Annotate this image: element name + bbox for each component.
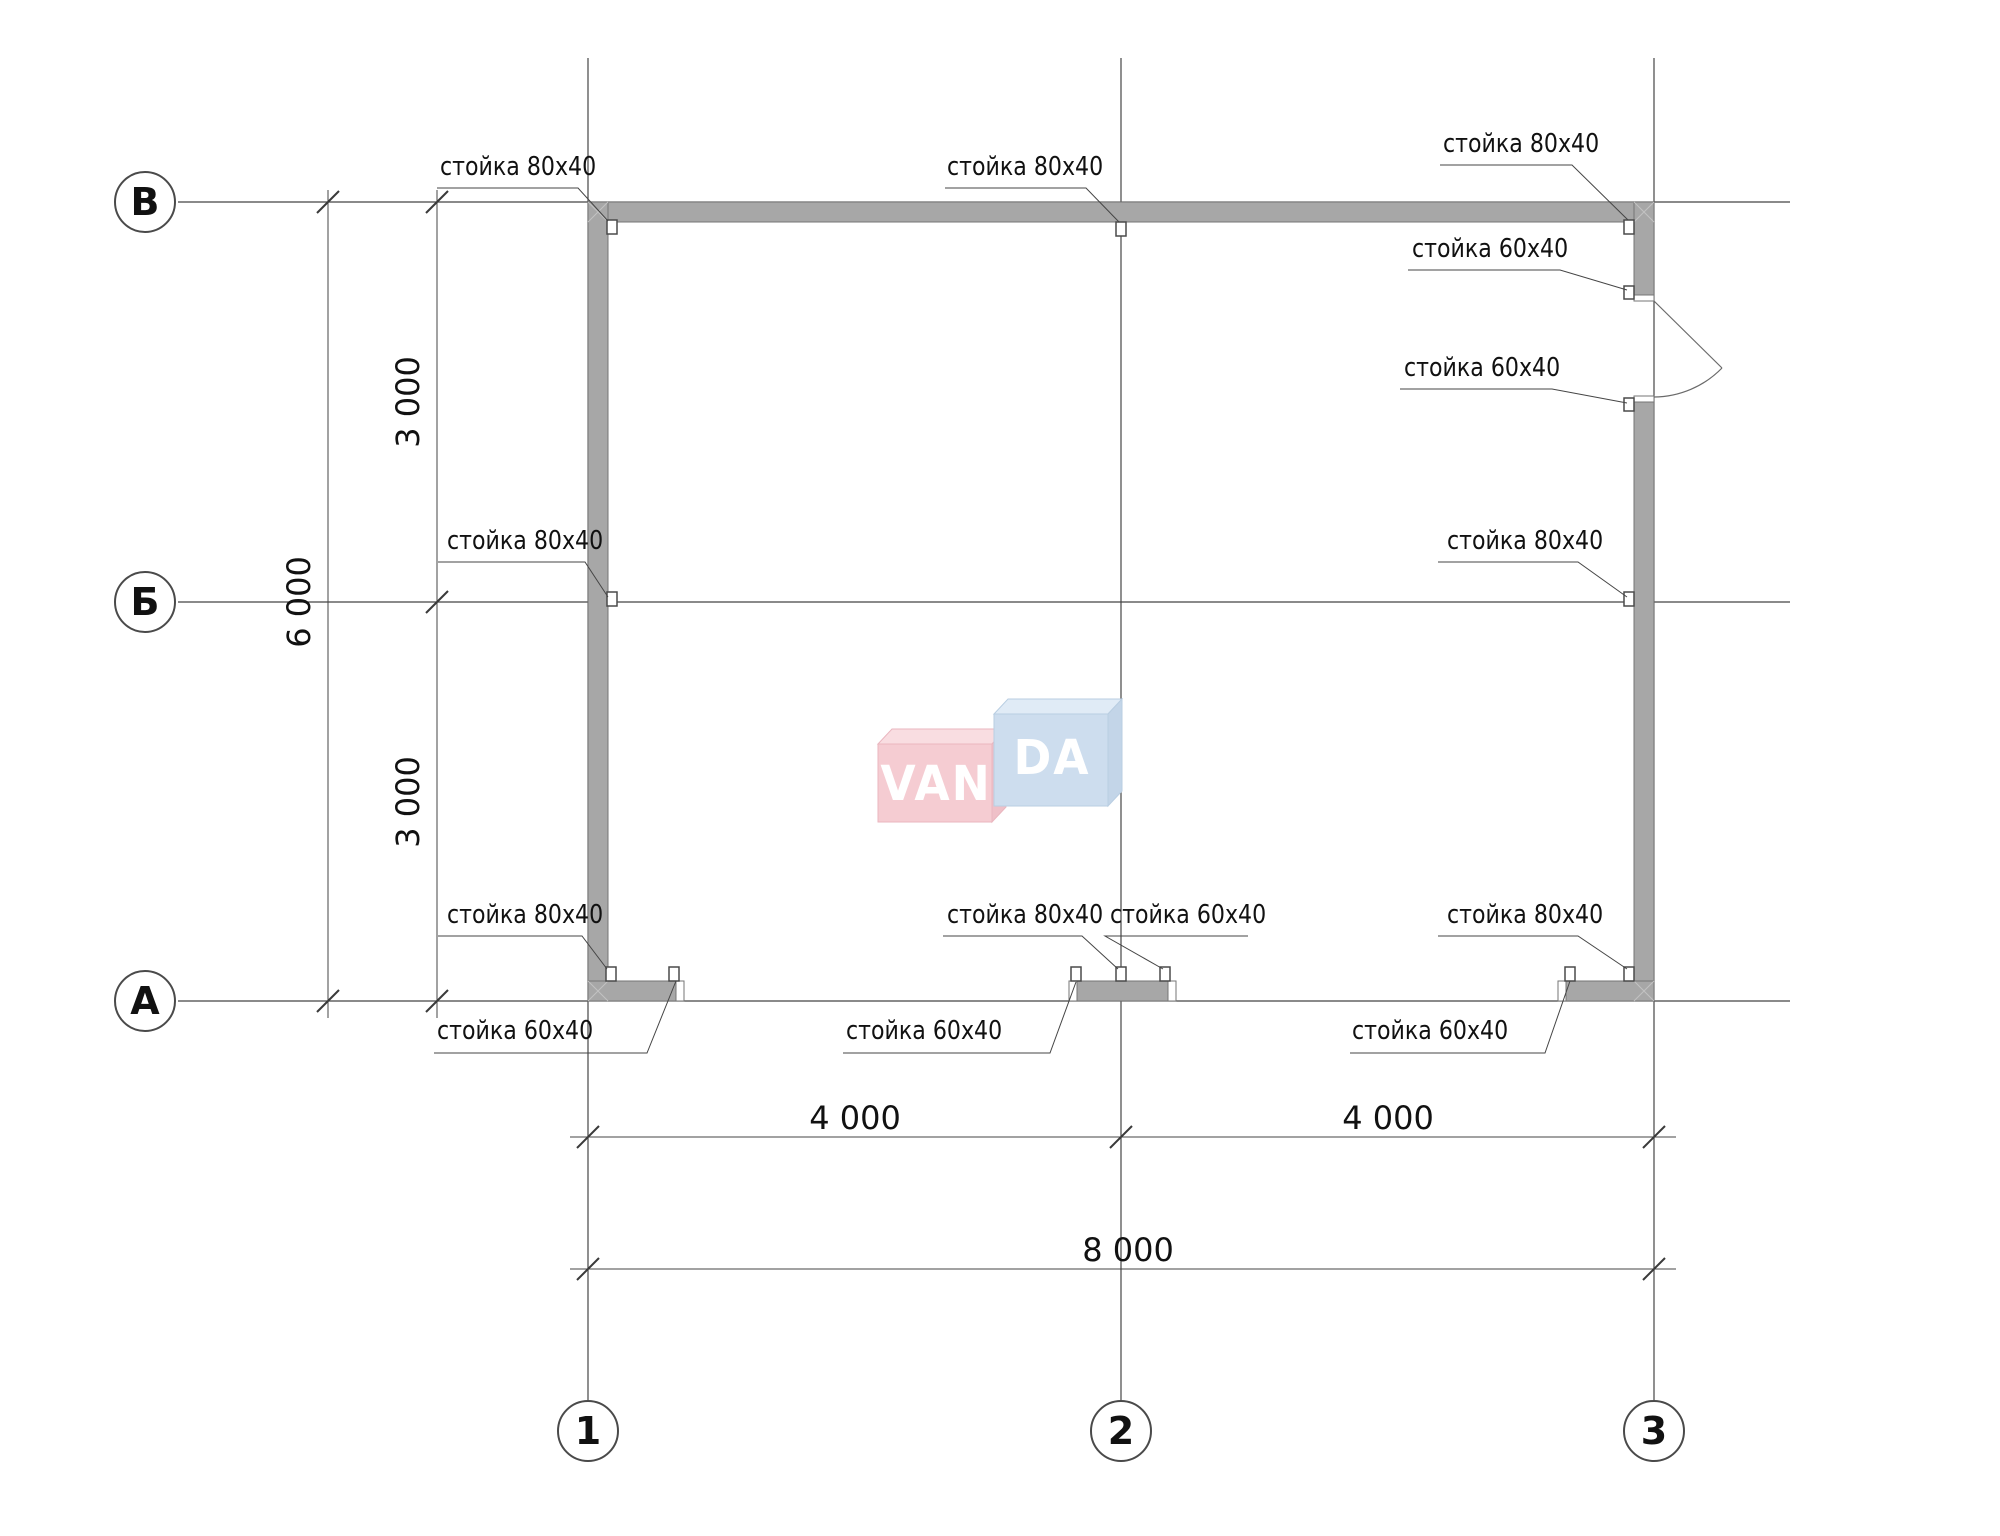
door-leaf	[1654, 301, 1722, 368]
leader-line	[1438, 562, 1627, 597]
axis-bubble-3: 3	[1623, 1400, 1685, 1462]
dim-text-6000: 6 000	[280, 556, 318, 648]
callout-post-right-middle: стойка 80х40	[1447, 528, 1603, 555]
logo-text-da: DA	[1014, 730, 1091, 786]
post-marker	[1624, 592, 1634, 606]
logo-pink-box-top	[878, 729, 1006, 744]
wall-cap	[1558, 981, 1566, 1001]
logo-blue-box-top	[994, 699, 1122, 714]
dim-text-4000-left: 4 000	[809, 1099, 901, 1137]
axis-bubble-1: 1	[557, 1400, 619, 1462]
post-marker	[1160, 967, 1170, 981]
leader-line	[438, 936, 607, 969]
callout-post-below-left: стойка 60х40	[437, 1018, 593, 1045]
wall-end-caps	[676, 295, 1654, 1001]
wall-top	[588, 202, 1654, 222]
wall-stub-bottom-right	[1566, 981, 1654, 1001]
post-marker	[1624, 967, 1634, 981]
axis-bubble-label: Б	[131, 580, 160, 624]
callout-post-below-right: стойка 60х40	[1352, 1018, 1508, 1045]
floor-plan-drawing: В Б А 1 2 3 3 000 3 000 6 000 4 000 4 00…	[0, 0, 2000, 1536]
post-marker	[1624, 286, 1634, 299]
dim-text-3000-top: 3 000	[389, 356, 427, 448]
axis-bubble-v: В	[114, 171, 176, 233]
callout-post-bottom-center: стойка 80х40	[947, 902, 1103, 929]
post-marker	[1624, 220, 1634, 234]
post-marker	[1116, 222, 1126, 236]
dim-text-3000-bottom: 3 000	[389, 756, 427, 848]
callout-post-left-middle: стойка 80х40	[447, 528, 603, 555]
wall-cap	[1634, 295, 1654, 301]
callout-post-door-top: стойка 60х40	[1412, 236, 1568, 263]
wall-right-upper	[1634, 202, 1654, 295]
logo-text-van: VAN	[880, 756, 991, 812]
post-marker	[669, 967, 679, 981]
door	[1654, 301, 1722, 397]
post-marker	[607, 592, 617, 606]
logo-blue-box-side	[1108, 699, 1122, 806]
callout-post-bottom-center-right: стойка 60х40	[1110, 902, 1266, 929]
callout-post-door-bottom: стойка 60х40	[1404, 355, 1560, 382]
post-marker	[1071, 967, 1081, 981]
wall-cap	[1634, 396, 1654, 402]
axis-bubble-label: В	[131, 180, 160, 224]
post-marker	[1624, 398, 1634, 411]
dim-text-8000: 8 000	[1082, 1231, 1174, 1269]
callout-post-top-right: стойка 80х40	[1443, 131, 1599, 158]
wall-stub-bottom-center	[1077, 981, 1168, 1001]
post-marker	[606, 967, 616, 981]
axis-bubble-label: 3	[1641, 1409, 1667, 1453]
dim-text-4000-right: 4 000	[1342, 1099, 1434, 1137]
axis-bubble-2: 2	[1090, 1400, 1152, 1462]
wall-cap	[676, 981, 684, 1001]
door-swing-arc	[1654, 368, 1722, 397]
post-markers	[606, 220, 1634, 981]
axis-bubble-label: 1	[575, 1409, 601, 1453]
wall-left	[588, 202, 608, 1001]
callout-post-top-center: стойка 80х40	[947, 154, 1103, 181]
callout-post-top-left: стойка 80х40	[440, 154, 596, 181]
wall-stub-bottom-left	[588, 981, 676, 1001]
axis-bubble-label: 2	[1108, 1409, 1134, 1453]
axis-bubble-label: А	[130, 979, 159, 1023]
leader-line	[1400, 389, 1627, 403]
leader-line	[943, 936, 1118, 969]
leader-line	[438, 562, 608, 597]
wall-right-lower	[1634, 402, 1654, 1001]
post-marker	[1565, 967, 1575, 981]
axis-bubble-a: А	[114, 970, 176, 1032]
wall-cap	[1168, 981, 1176, 1001]
post-marker	[607, 220, 617, 234]
leader-line	[1438, 936, 1627, 969]
plan-linework	[0, 0, 2000, 1536]
leader-line	[437, 188, 608, 221]
callout-post-bottom-right: стойка 80х40	[1447, 902, 1603, 929]
leader-line	[1408, 270, 1627, 290]
callout-post-below-center: стойка 60х40	[846, 1018, 1002, 1045]
callout-post-bottom-left: стойка 80х40	[447, 902, 603, 929]
leader-line	[1105, 936, 1248, 969]
axis-bubble-b: Б	[114, 571, 176, 633]
